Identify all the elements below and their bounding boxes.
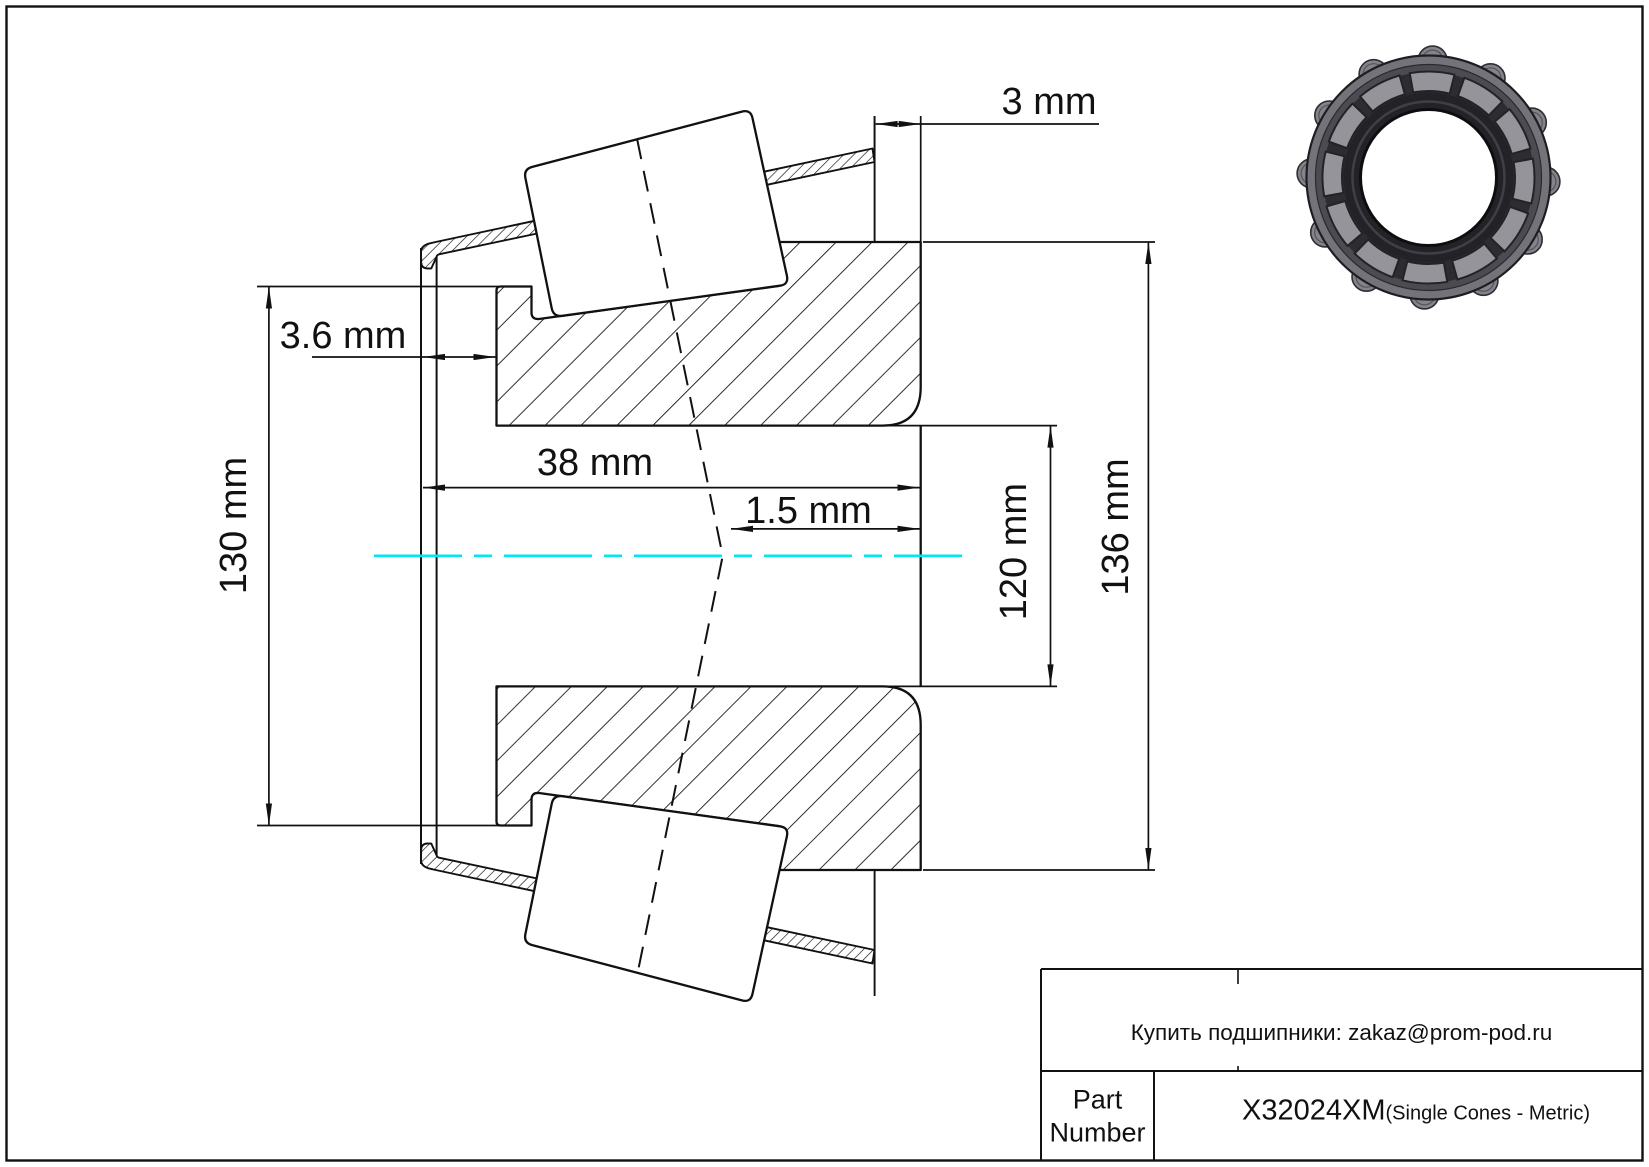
svg-text:1.5 mm: 1.5 mm: [745, 490, 872, 532]
svg-text:3 mm: 3 mm: [1002, 81, 1097, 123]
svg-text:130 mm: 130 mm: [213, 457, 255, 594]
svg-text:Купить подшипники: zakaz@prom-: Купить подшипники: zakaz@prom-pod.ru: [1131, 1020, 1553, 1045]
svg-text:136 mm: 136 mm: [1095, 458, 1137, 595]
svg-text:Number: Number: [1049, 1118, 1145, 1148]
svg-text:3.6 mm: 3.6 mm: [280, 315, 407, 357]
svg-text:120 mm: 120 mm: [993, 483, 1035, 620]
svg-text:38 mm: 38 mm: [537, 442, 653, 484]
svg-text:Part: Part: [1073, 1084, 1123, 1114]
